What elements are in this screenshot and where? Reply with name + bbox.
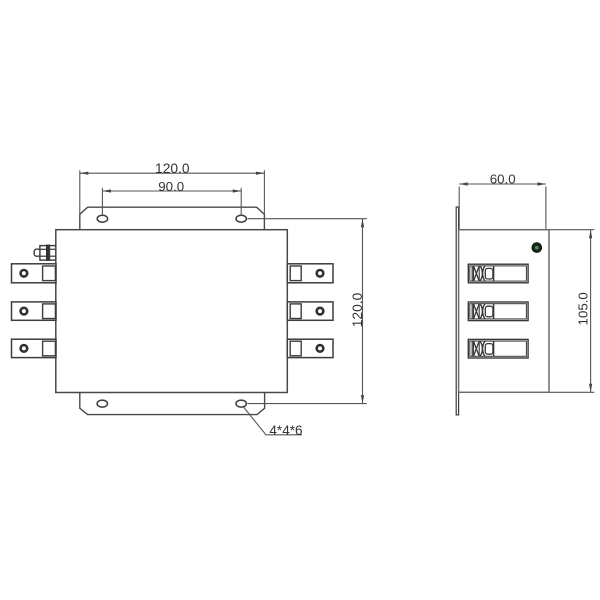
svg-text:4*4*6: 4*4*6 xyxy=(269,423,302,438)
svg-text:105.0: 105.0 xyxy=(576,292,591,325)
svg-text:90.0: 90.0 xyxy=(158,179,184,194)
svg-text:120.0: 120.0 xyxy=(350,292,365,327)
svg-text:60.0: 60.0 xyxy=(490,172,516,187)
svg-text:120.0: 120.0 xyxy=(155,161,190,176)
